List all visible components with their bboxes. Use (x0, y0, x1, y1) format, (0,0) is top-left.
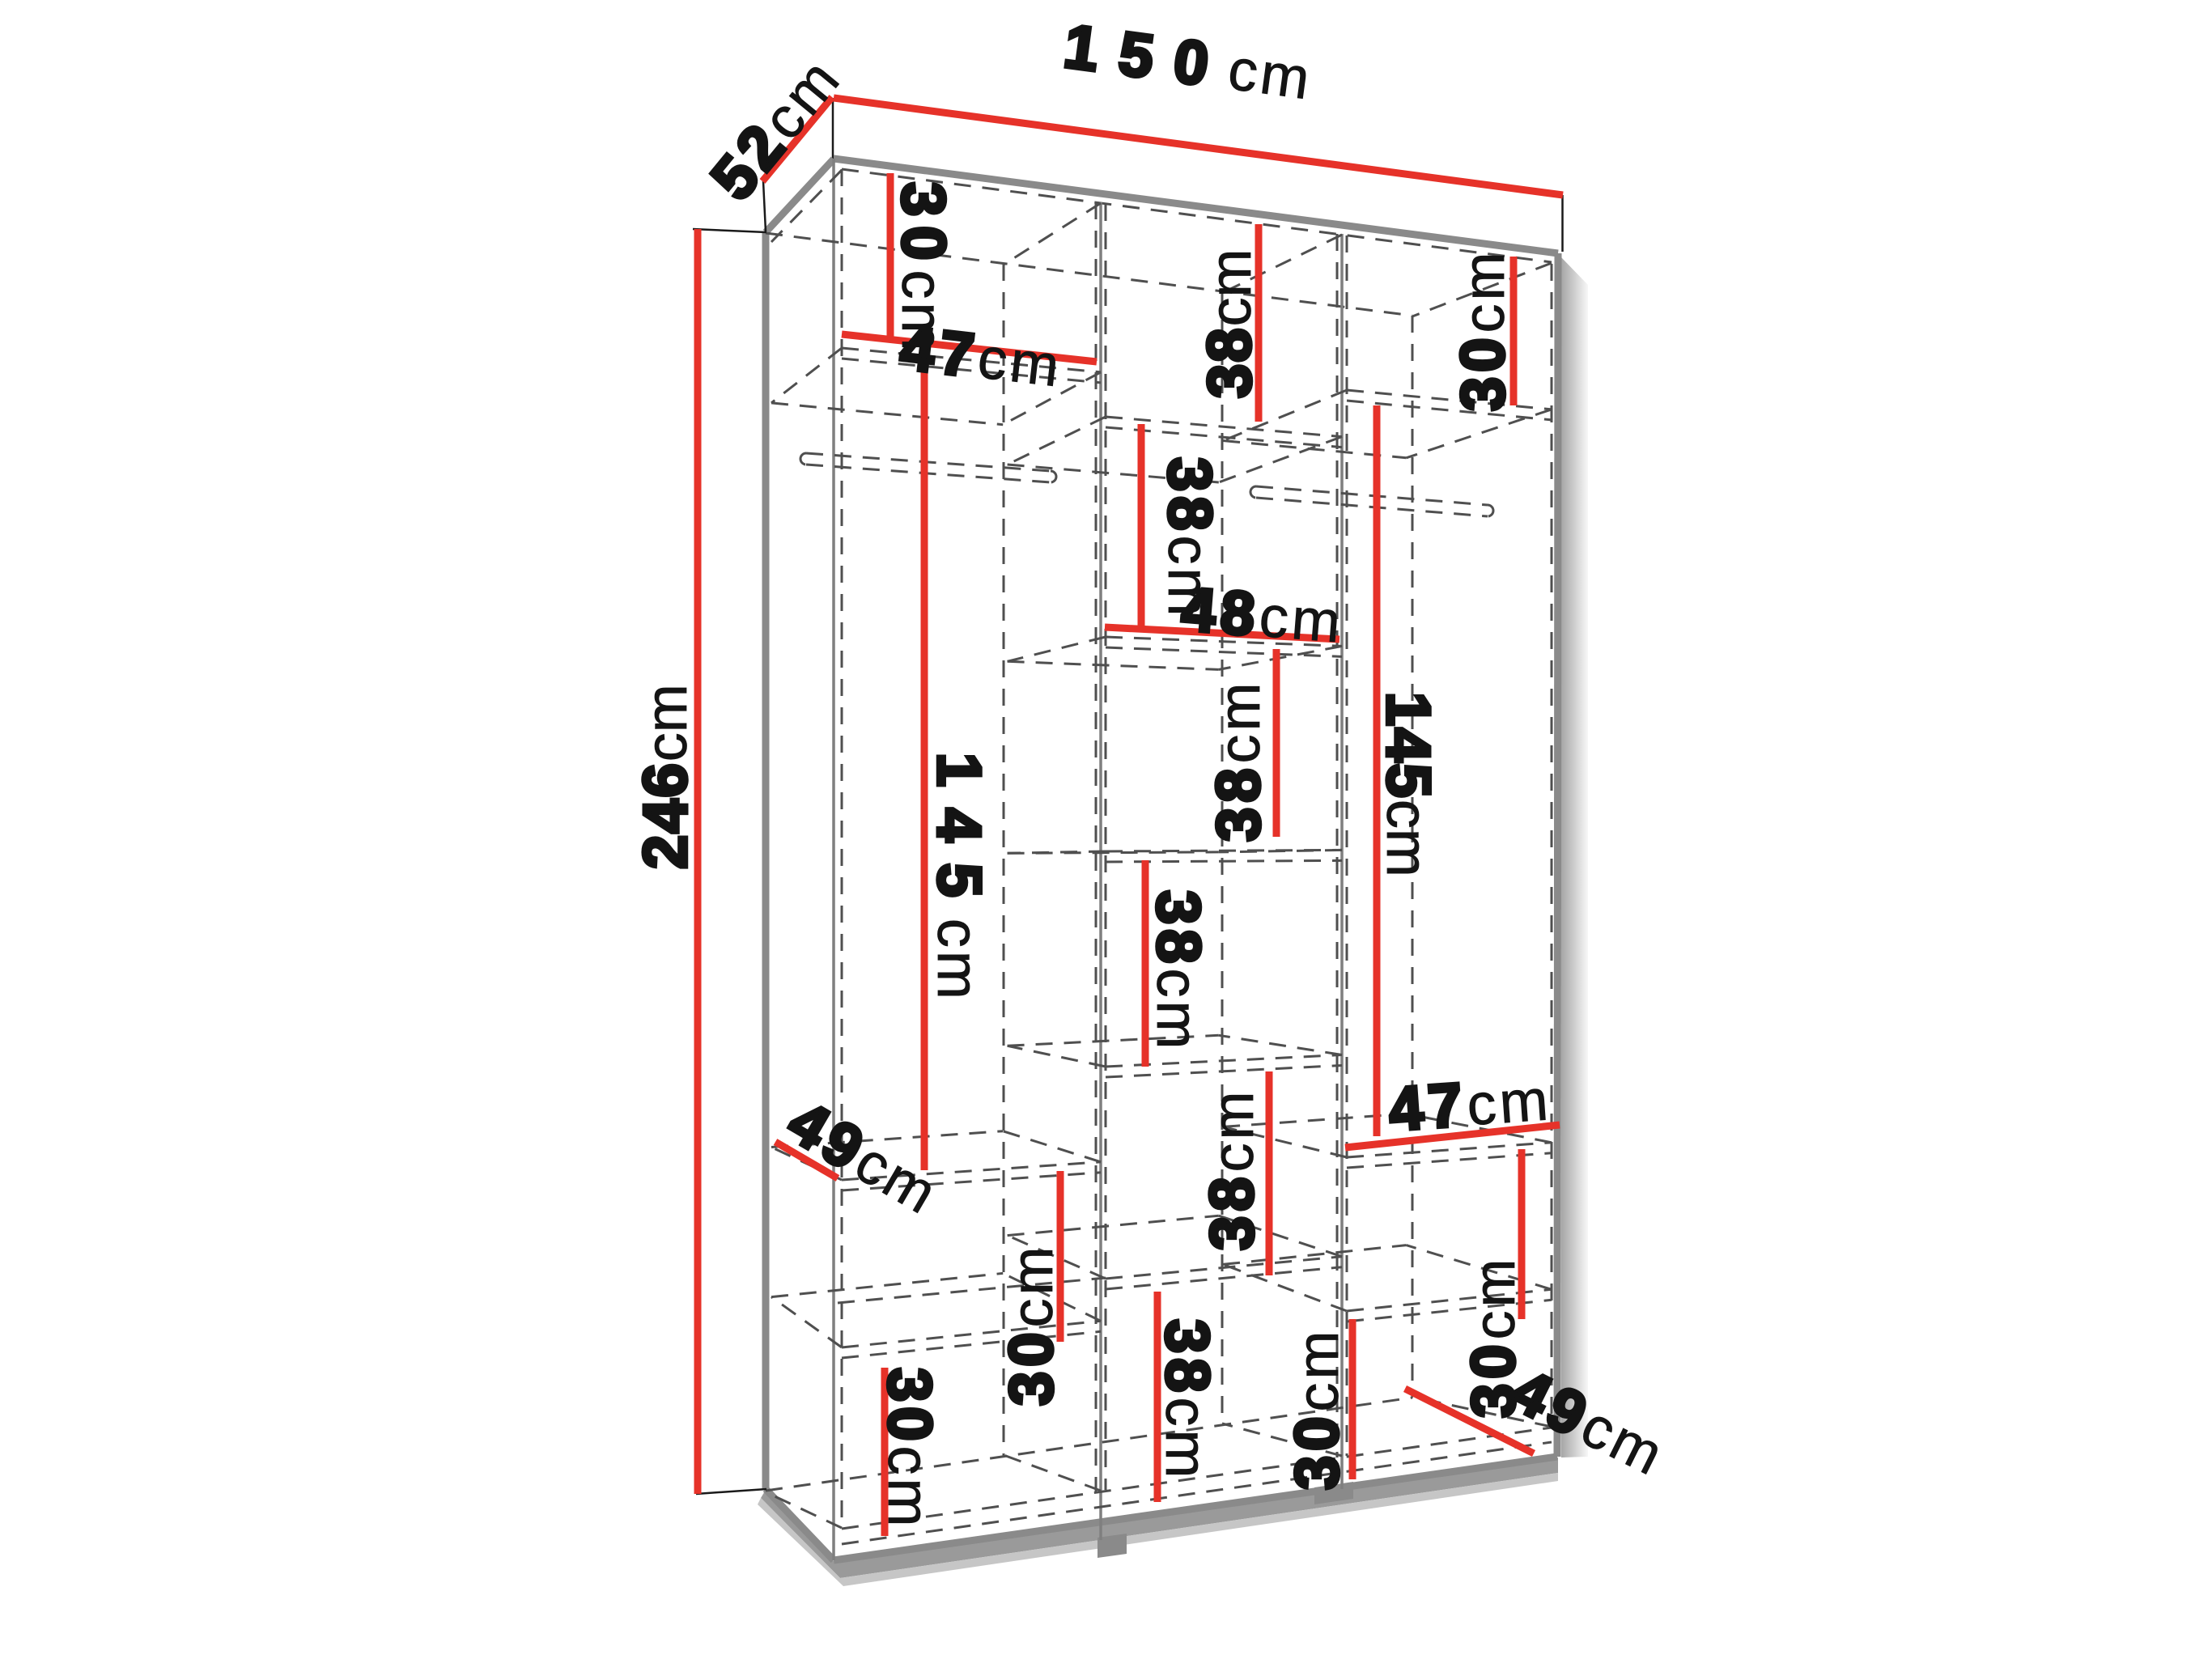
svg-text:38cm: 38cm (1198, 1088, 1267, 1250)
svg-text:47cm: 47cm (1386, 1064, 1553, 1144)
svg-text:246cm: 246cm (631, 684, 700, 869)
svg-text:38cm: 38cm (1144, 890, 1212, 1053)
svg-text:30cm: 30cm (1449, 248, 1518, 411)
svg-text:30cm: 30cm (997, 1243, 1066, 1406)
svg-text:38cm: 38cm (1195, 248, 1264, 398)
svg-text:30cm: 30cm (1283, 1327, 1352, 1490)
svg-text:38cm: 38cm (1153, 1319, 1221, 1482)
svg-text:38cm: 38cm (1204, 679, 1273, 842)
svg-text:145cm: 145cm (924, 753, 993, 1003)
svg-text:30cm: 30cm (875, 1368, 944, 1530)
svg-text:145cm: 145cm (1373, 692, 1442, 877)
